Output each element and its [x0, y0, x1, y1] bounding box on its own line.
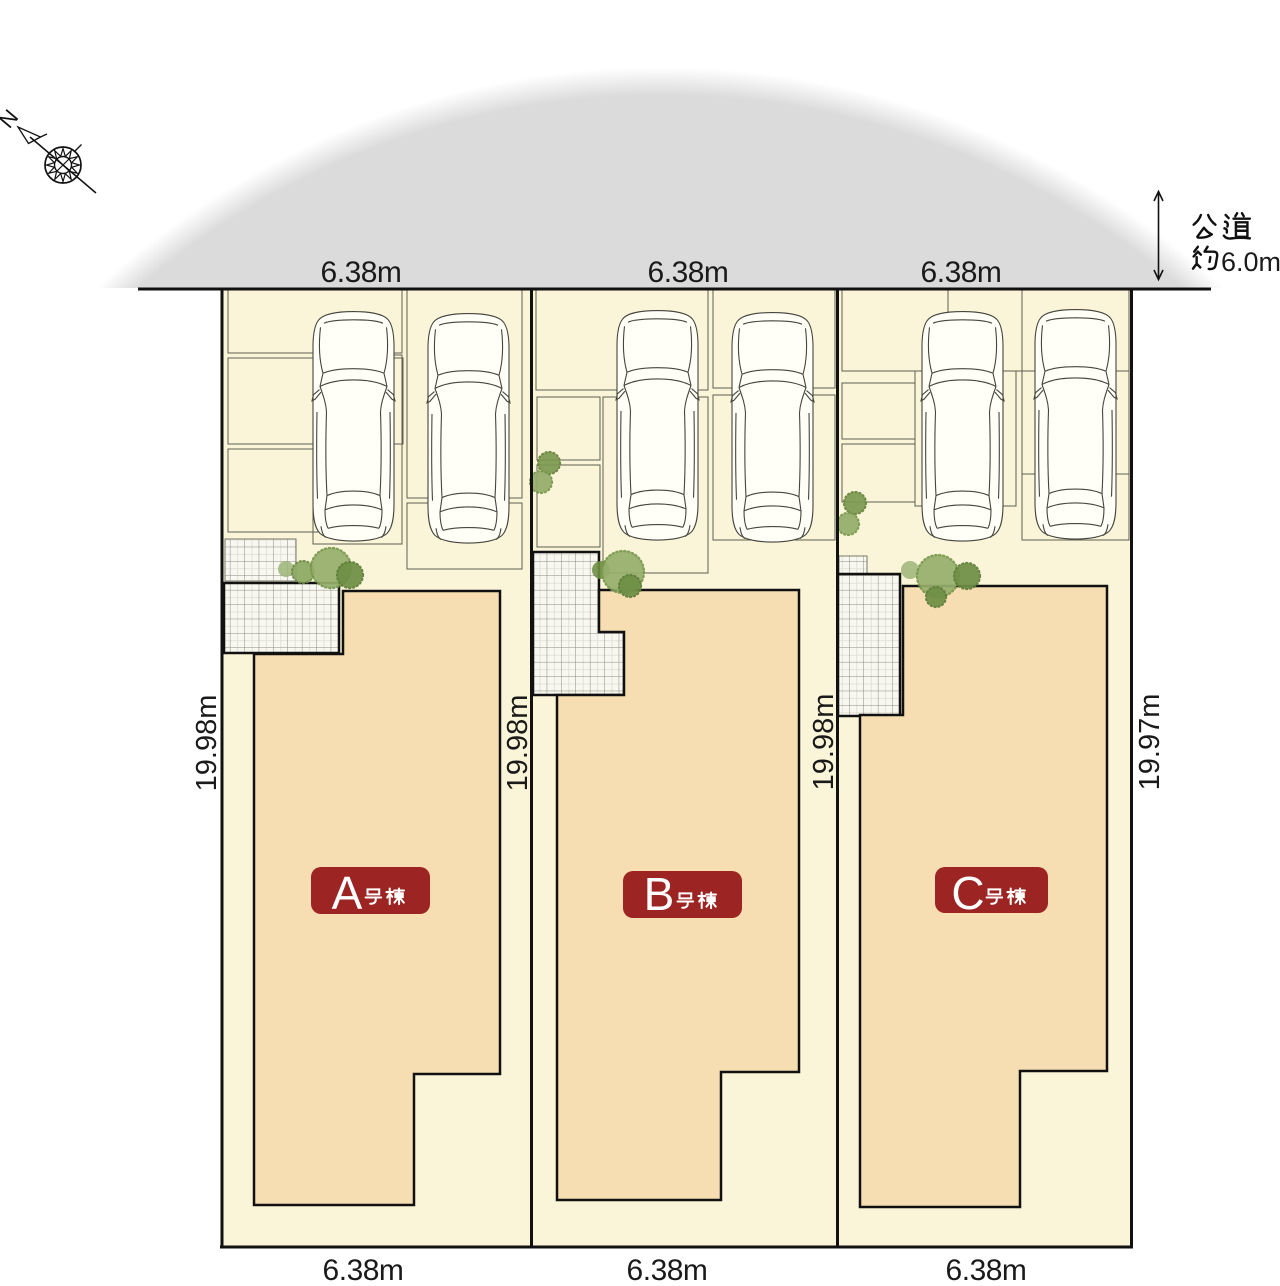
svg-text:6.38m: 6.38m [323, 1254, 404, 1286]
svg-text:6.38m: 6.38m [921, 256, 1002, 289]
svg-text:C: C [951, 867, 984, 919]
svg-text:6.38m: 6.38m [627, 1254, 708, 1286]
svg-text:19.98m: 19.98m [808, 694, 840, 791]
svg-text:6.38m: 6.38m [321, 256, 402, 289]
svg-text:6.38m: 6.38m [946, 1254, 1027, 1286]
svg-text:6.38m: 6.38m [648, 256, 729, 289]
svg-text:6.0m: 6.0m [1221, 247, 1280, 277]
svg-text:B: B [644, 868, 675, 920]
svg-text:A: A [332, 867, 363, 919]
svg-text:19.98m: 19.98m [502, 695, 534, 792]
svg-text:N: N [0, 105, 23, 133]
svg-text:19.97m: 19.97m [1134, 694, 1166, 791]
svg-text:19.98m: 19.98m [191, 695, 223, 792]
